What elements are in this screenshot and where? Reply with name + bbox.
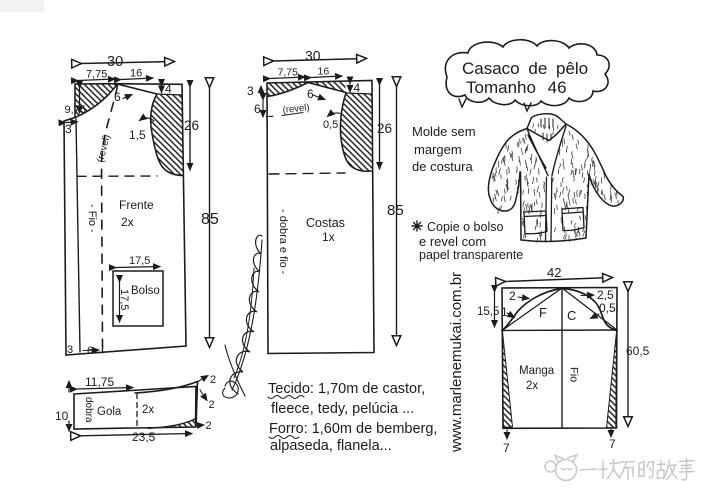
svg-text:85: 85 <box>201 211 219 228</box>
svg-text:(revel): (revel) <box>95 134 113 164</box>
svg-text:0,5: 0,5 <box>599 301 616 315</box>
svg-text:9,75: 9,75 <box>65 104 86 116</box>
svg-text:17,5: 17,5 <box>118 289 130 310</box>
svg-text:de costura: de costura <box>412 159 473 174</box>
svg-text:0,5: 0,5 <box>323 119 338 131</box>
svg-text:1,5: 1,5 <box>129 128 146 142</box>
svg-text:Gola: Gola <box>97 406 122 418</box>
svg-text:17,5: 17,5 <box>129 255 150 267</box>
svg-text:6: 6 <box>307 87 314 101</box>
svg-text:16: 16 <box>318 66 330 78</box>
svg-text:3: 3 <box>247 84 254 98</box>
svg-text:6: 6 <box>114 90 121 104</box>
svg-text:60,5: 60,5 <box>626 344 650 358</box>
svg-text:11,75: 11,75 <box>85 375 114 389</box>
svg-text:Manga: Manga <box>519 365 555 377</box>
svg-text:margem: margem <box>414 142 462 157</box>
svg-text:2x: 2x <box>526 380 538 392</box>
svg-text:e revel com: e revel com <box>419 234 486 249</box>
svg-text:3: 3 <box>65 122 72 136</box>
svg-text:Fio: Fio <box>568 367 580 382</box>
svg-text:Casaco de pêlo: Casaco de pêlo <box>462 59 588 78</box>
svg-text:30: 30 <box>305 48 321 64</box>
svg-text:alpaseda, flanela...: alpaseda, flanela... <box>270 438 392 454</box>
svg-text:6: 6 <box>254 102 261 116</box>
svg-text:Copie o bolso: Copie o bolso <box>427 220 503 234</box>
svg-text:2,5: 2,5 <box>597 288 614 302</box>
svg-text:2x: 2x <box>142 404 154 416</box>
svg-text:7,75: 7,75 <box>278 67 299 79</box>
svg-text:dobra: dobra <box>83 397 94 423</box>
svg-text:4: 4 <box>165 82 172 96</box>
svg-text:- Fio -: - Fio - <box>86 204 98 233</box>
svg-text:Forro: 1,60m de bemberg,: Forro: 1,60m de bemberg, <box>269 421 437 437</box>
svg-text:7,75: 7,75 <box>86 69 107 81</box>
svg-text:fleece, tedy, pelúcia ...: fleece, tedy, pelúcia ... <box>271 401 414 417</box>
svg-text:26: 26 <box>377 121 392 136</box>
svg-text:Bolso: Bolso <box>131 285 160 297</box>
svg-text:7: 7 <box>609 437 616 451</box>
svg-text:C: C <box>567 308 576 323</box>
svg-text:15,5: 15,5 <box>477 306 499 318</box>
svg-text:2x: 2x <box>121 215 134 229</box>
svg-text:42: 42 <box>547 265 561 280</box>
svg-text:7: 7 <box>503 441 510 455</box>
svg-text:- dobra e fio -: - dobra e fio - <box>277 209 289 275</box>
svg-text:1: 1 <box>501 305 508 319</box>
svg-text:F: F <box>539 305 547 320</box>
svg-text:2: 2 <box>210 374 216 386</box>
svg-text:1x: 1x <box>322 230 335 244</box>
svg-text:2: 2 <box>209 399 215 411</box>
svg-text:30: 30 <box>107 54 123 70</box>
svg-text:10: 10 <box>55 409 69 423</box>
svg-text:16: 16 <box>130 68 142 80</box>
svg-text:Molde sem: Molde sem <box>412 124 476 139</box>
svg-text:3: 3 <box>67 344 73 356</box>
svg-text:23,5: 23,5 <box>132 430 156 444</box>
svg-text:www.marlenemukai.com.br: www.marlenemukai.com.br <box>448 272 465 453</box>
svg-text:Tecido: 1,70m de castor,: Tecido: 1,70m de castor, <box>268 381 425 397</box>
svg-text:6: 6 <box>87 345 93 357</box>
svg-text:2: 2 <box>509 289 516 303</box>
svg-text:4: 4 <box>354 81 361 95</box>
svg-text:papel transparente: papel transparente <box>419 248 523 262</box>
svg-text:26: 26 <box>184 118 199 133</box>
svg-text:Frente: Frente <box>119 198 154 212</box>
svg-text:Tomanho 46: Tomanho 46 <box>466 78 567 97</box>
svg-text:Costas: Costas <box>306 216 345 230</box>
svg-text:85: 85 <box>387 202 404 219</box>
svg-text:2: 2 <box>206 420 212 432</box>
